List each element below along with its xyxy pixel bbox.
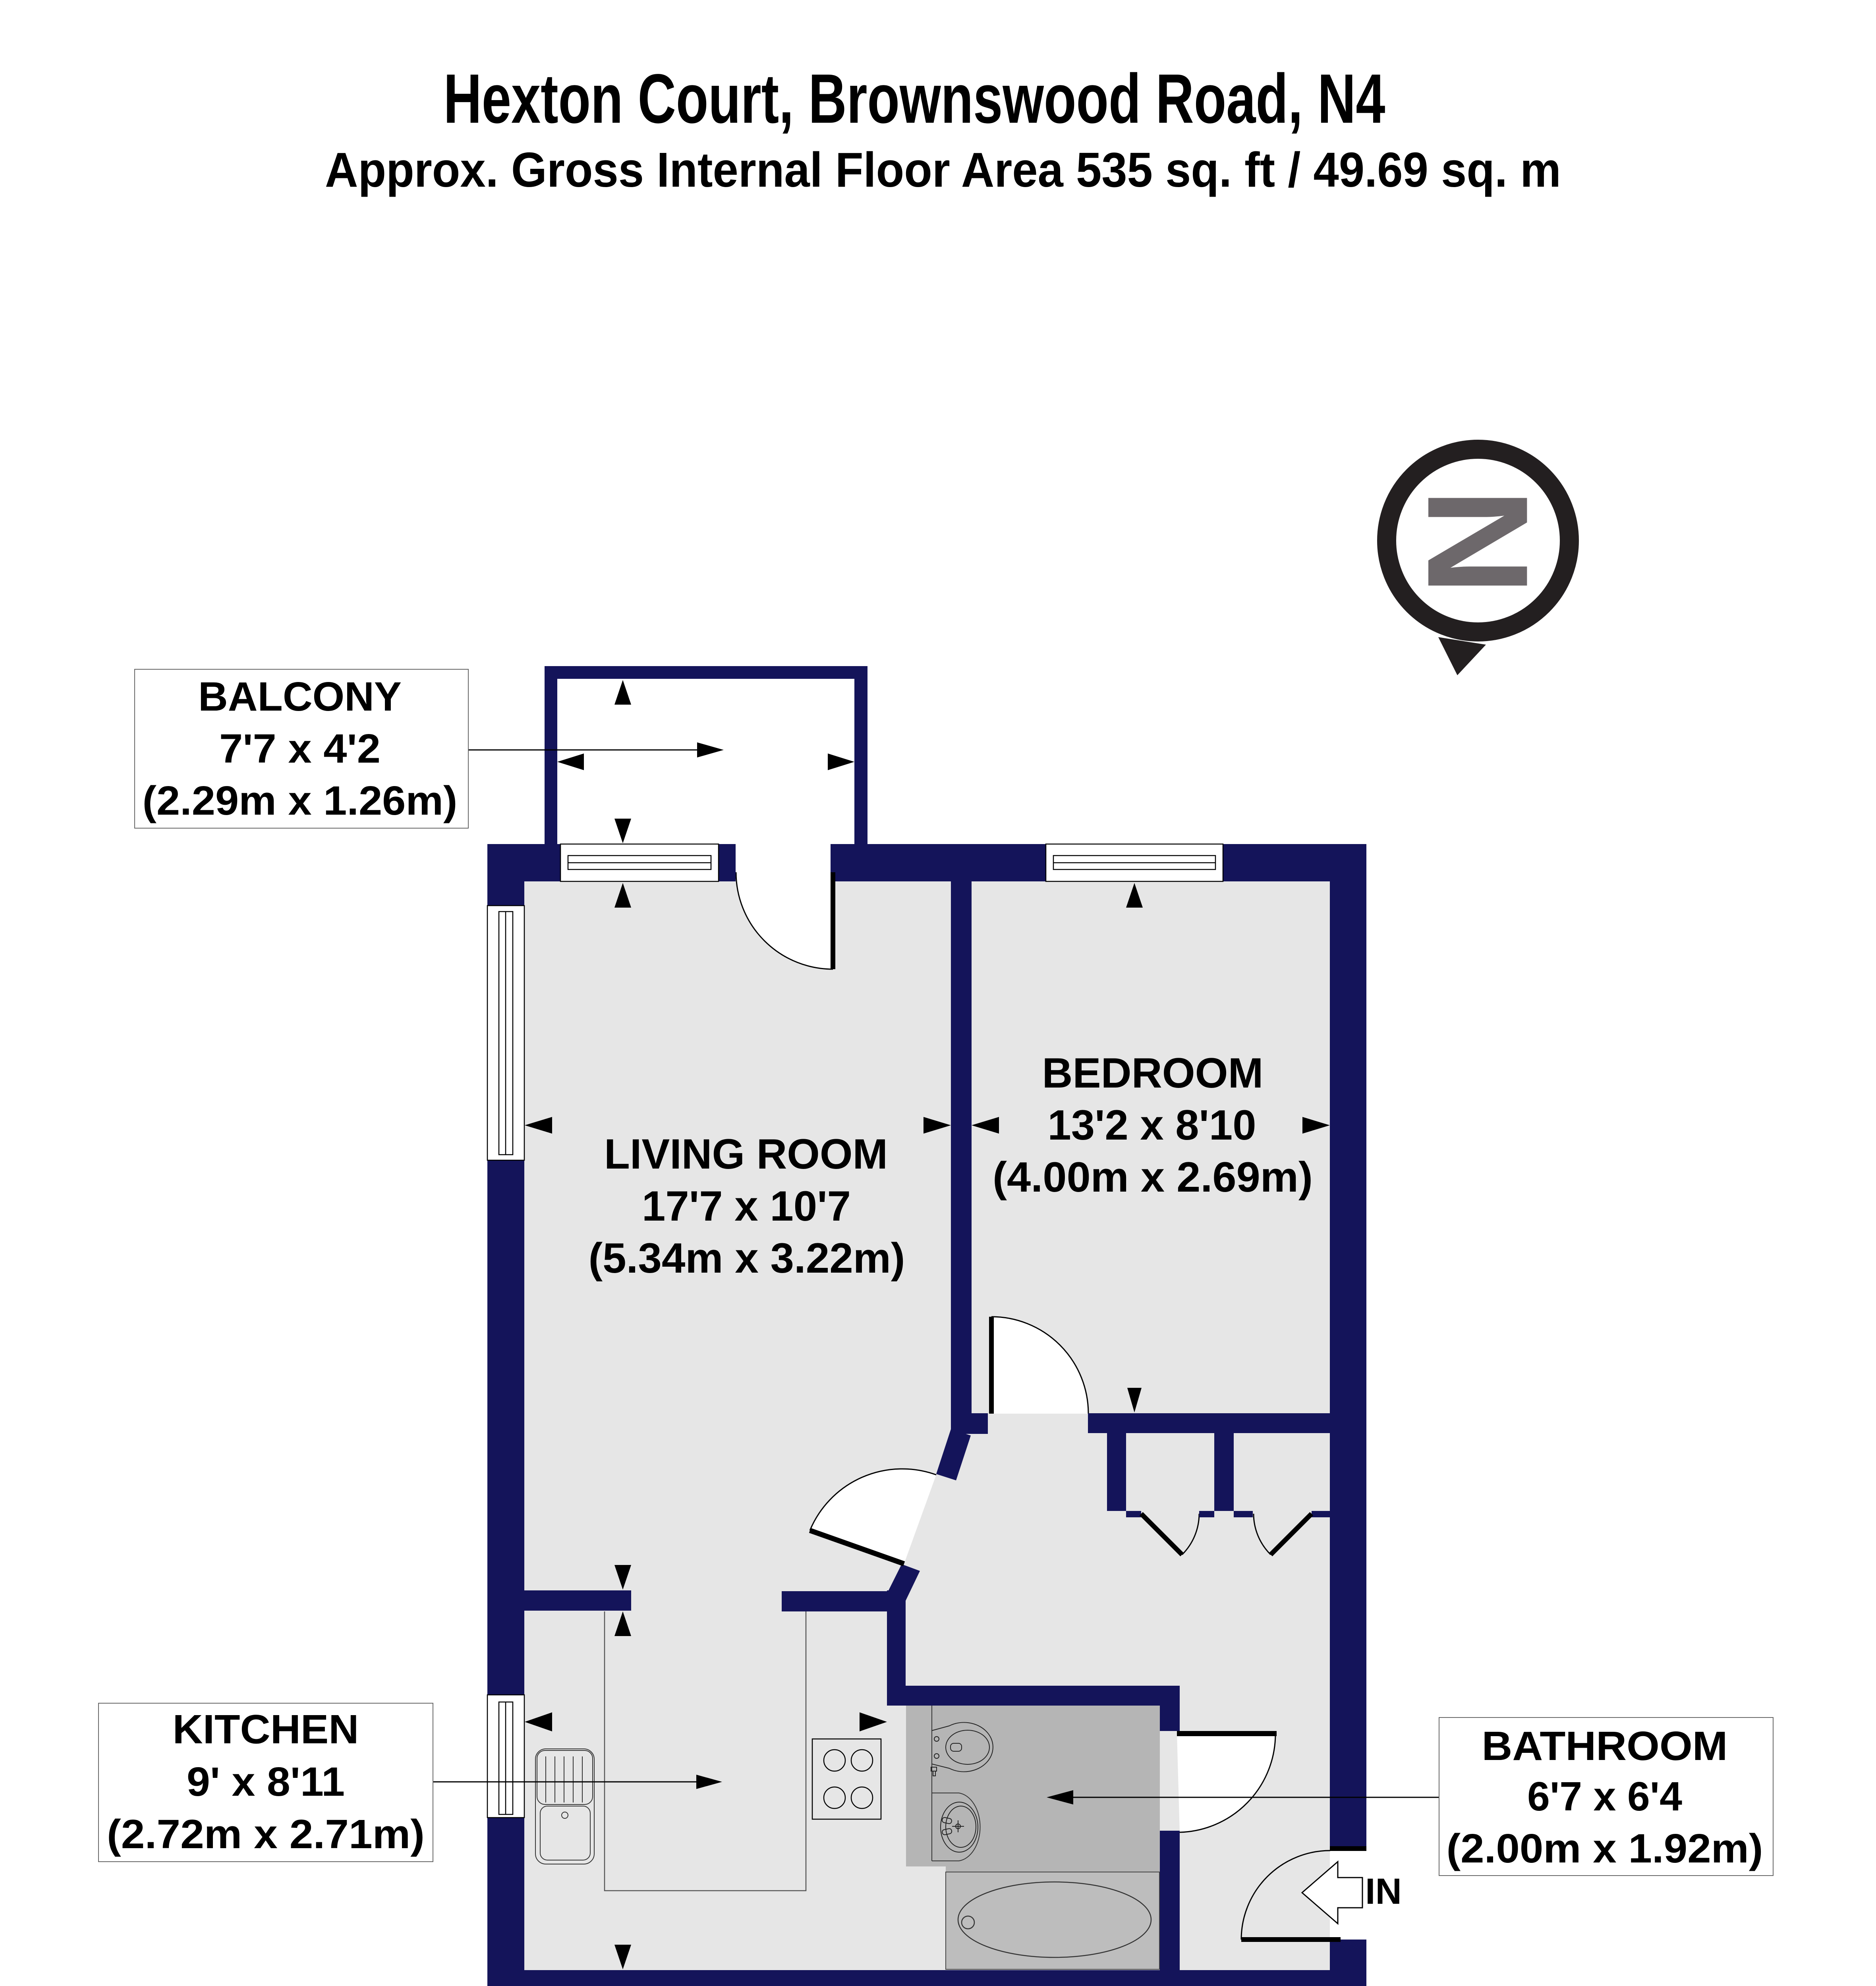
svg-text:9' x 8'11: 9' x 8'11 xyxy=(187,1759,345,1804)
svg-text:13'2 x 8'10: 13'2 x 8'10 xyxy=(1048,1101,1256,1149)
svg-text:N: N xyxy=(1398,488,1558,596)
svg-text:BALCONY: BALCONY xyxy=(198,674,402,719)
svg-text:LIVING ROOM: LIVING ROOM xyxy=(604,1130,888,1178)
svg-text:17'7 x 10'7: 17'7 x 10'7 xyxy=(642,1182,851,1230)
svg-text:BEDROOM: BEDROOM xyxy=(1042,1049,1264,1097)
svg-text:(2.29m x 1.26m): (2.29m x 1.26m) xyxy=(143,778,458,823)
svg-text:7'7 x 4'2: 7'7 x 4'2 xyxy=(219,726,381,771)
svg-text:(4.00m x 2.69m): (4.00m x 2.69m) xyxy=(993,1153,1313,1201)
svg-text:Hexton Court, Brownswood Road,: Hexton Court, Brownswood Road, N4 xyxy=(444,60,1385,138)
svg-text:KITCHEN: KITCHEN xyxy=(173,1706,359,1752)
svg-text:(2.72m x 2.71m): (2.72m x 2.71m) xyxy=(107,1811,425,1857)
svg-text:Approx. Gross Internal Floor A: Approx. Gross Internal Floor Area 535 sq… xyxy=(325,143,1561,197)
svg-text:(5.34m x 3.22m): (5.34m x 3.22m) xyxy=(589,1234,905,1282)
svg-text:BATHROOM: BATHROOM xyxy=(1482,1723,1728,1769)
svg-text:(2.00m x 1.92m): (2.00m x 1.92m) xyxy=(1447,1826,1763,1871)
svg-text:6'7 x 6'4: 6'7 x 6'4 xyxy=(1527,1773,1682,1819)
svg-text:IN: IN xyxy=(1365,1871,1402,1912)
